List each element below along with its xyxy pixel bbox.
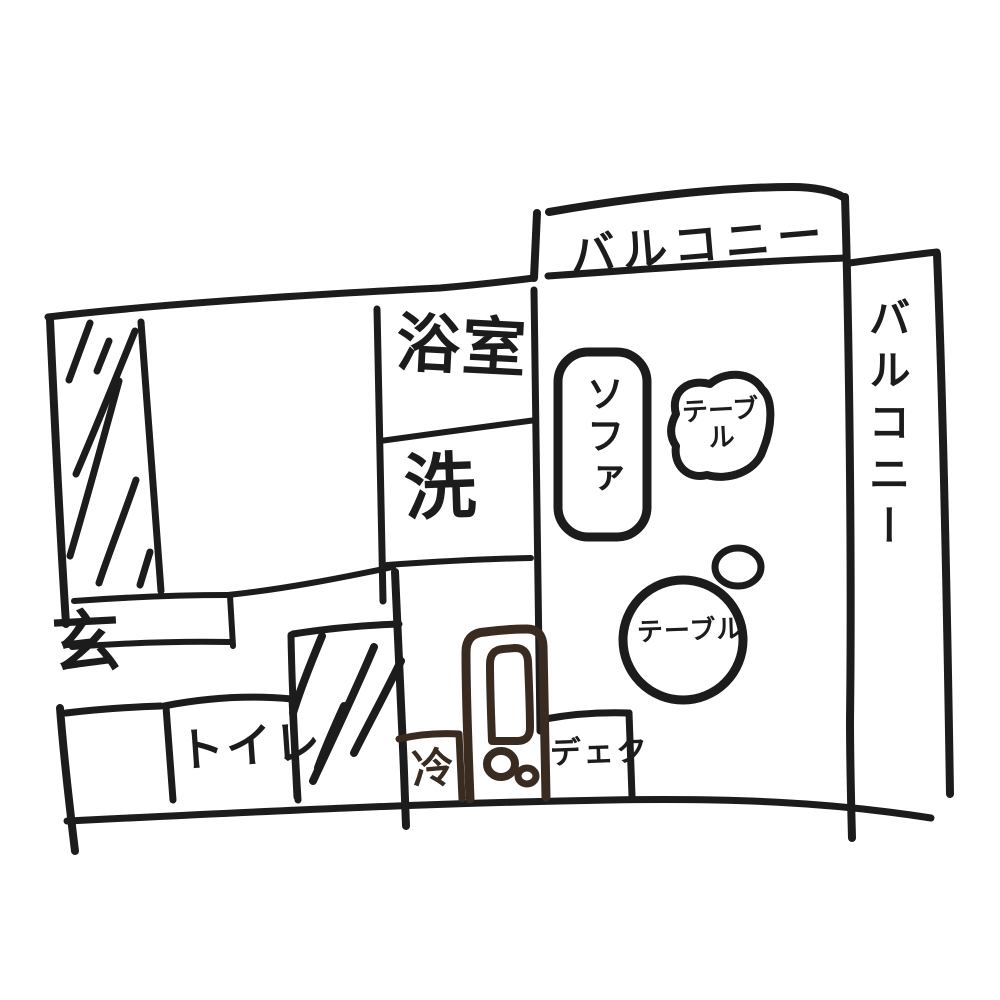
desk-box-top (545, 713, 629, 719)
hatch-stroke (99, 480, 136, 583)
corridor-top-wall-1 (74, 595, 228, 601)
kitchen-wall (395, 572, 406, 826)
corridor-top-wall-2 (228, 567, 393, 595)
balcony-right-label: バルコニー (864, 296, 908, 716)
refrigerator-box-right (459, 734, 462, 799)
corridor-step-wall (230, 596, 233, 646)
refrigerator-door (490, 648, 530, 741)
bathroom-left-wall (377, 309, 383, 601)
entrance-label: 玄 (50, 606, 122, 681)
bottom-wall (67, 800, 931, 821)
left-outer-wall (50, 320, 66, 624)
table-blob-label: テーブル (677, 396, 766, 455)
refrigerator-knob (487, 751, 515, 777)
floor-plan-drawing (0, 0, 1000, 1000)
sofa-label: ソファ (581, 374, 621, 524)
hatch-box-top (293, 624, 399, 634)
hatch-stroke (140, 552, 150, 585)
desk-label: デェク (549, 734, 649, 770)
right-outer-wall (937, 254, 950, 794)
balcony-top-left-wall (534, 213, 537, 278)
living-balcony-wall (845, 197, 852, 838)
laundry-bottom-wall (387, 558, 531, 565)
floor-plan: バルコニー バルコニー 浴室 洗 玄 トイレ ソファ テーブル テーブル 冷 デ… (0, 0, 1000, 1000)
refrigerator-knob (518, 768, 536, 784)
bathroom-label: 浴室 (394, 311, 529, 385)
left-outer-wall-lower (60, 708, 75, 851)
table-round-label: テーブル (637, 616, 744, 647)
closet-hatch (69, 323, 150, 585)
refrigerator-label: 冷 (410, 745, 456, 793)
hatch-stroke (293, 636, 322, 713)
toilet-box-top (164, 697, 292, 706)
toilet-label: トイレ (176, 717, 323, 775)
wall-top-right (849, 252, 937, 263)
hatch-stroke (97, 341, 109, 371)
stool (715, 548, 761, 586)
entrance-box-top (66, 706, 161, 713)
toilet-box-left (166, 707, 173, 800)
bath-laundry-divider (380, 420, 536, 441)
hatch-stroke (69, 323, 90, 380)
refrigerator-box-top (399, 734, 459, 739)
laundry-label: 洗 (403, 449, 478, 527)
